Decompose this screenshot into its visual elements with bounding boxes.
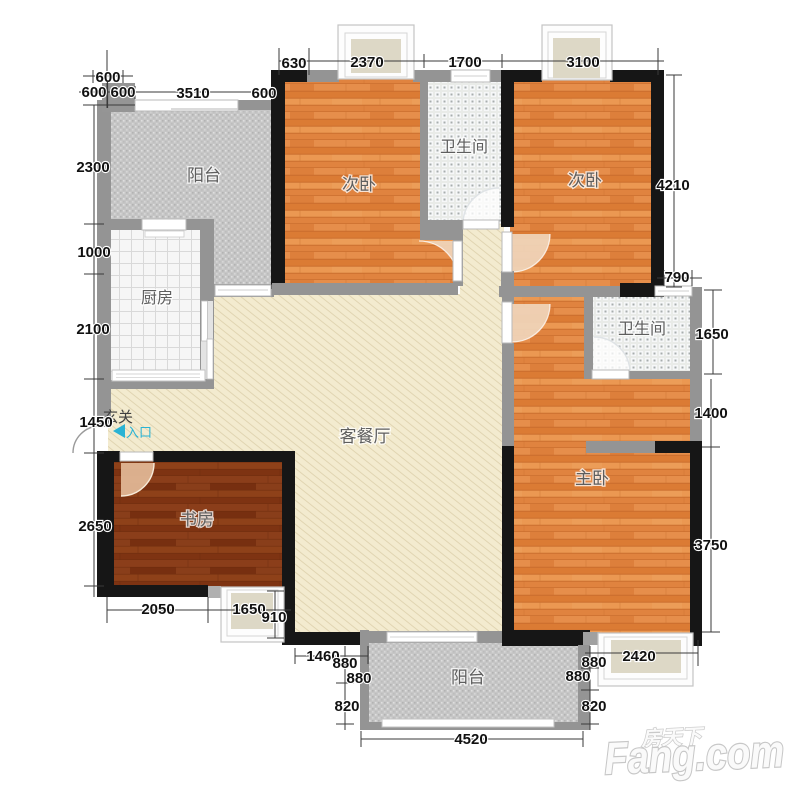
svg-text:600: 600 [251,85,276,102]
svg-text:2300: 2300 [76,159,109,176]
svg-text:客餐厅: 客餐厅 [340,427,391,446]
svg-text:3100: 3100 [566,54,599,71]
svg-text:2050: 2050 [141,601,174,618]
svg-text:1000: 1000 [77,244,110,261]
svg-text:4210: 4210 [656,177,689,194]
svg-text:2650: 2650 [78,518,111,535]
svg-text:880: 880 [346,670,371,687]
svg-text:600: 600 [81,84,106,101]
svg-text:820: 820 [334,698,359,715]
svg-text:2370: 2370 [350,54,383,71]
svg-text:1700: 1700 [448,54,481,71]
svg-text:790: 790 [664,269,689,286]
svg-text:主卧: 主卧 [575,469,609,488]
svg-text:2100: 2100 [76,321,109,338]
svg-text:卫生间: 卫生间 [618,320,666,338]
svg-text:厨房: 厨房 [141,289,173,307]
svg-text:3750: 3750 [694,537,727,554]
svg-text:910: 910 [261,609,286,626]
svg-text:阳台: 阳台 [451,668,485,687]
svg-text:Fang.com: Fang.com [603,725,785,784]
svg-text:880: 880 [565,668,590,685]
svg-text:阳台: 阳台 [187,166,221,185]
svg-text:2420: 2420 [622,648,655,665]
svg-text:1400: 1400 [694,405,727,422]
svg-text:4520: 4520 [454,731,487,748]
svg-text:820: 820 [581,698,606,715]
svg-text:1450: 1450 [79,414,112,431]
svg-text:1650: 1650 [695,326,728,343]
svg-text:次卧: 次卧 [342,175,376,194]
svg-text:630: 630 [281,55,306,72]
svg-text:3510: 3510 [176,85,209,102]
svg-text:600: 600 [110,84,135,101]
svg-text:入口: 入口 [126,425,152,440]
svg-text:卫生间: 卫生间 [440,138,488,156]
svg-text:次卧: 次卧 [568,171,602,190]
svg-text:书房: 书房 [180,510,214,529]
